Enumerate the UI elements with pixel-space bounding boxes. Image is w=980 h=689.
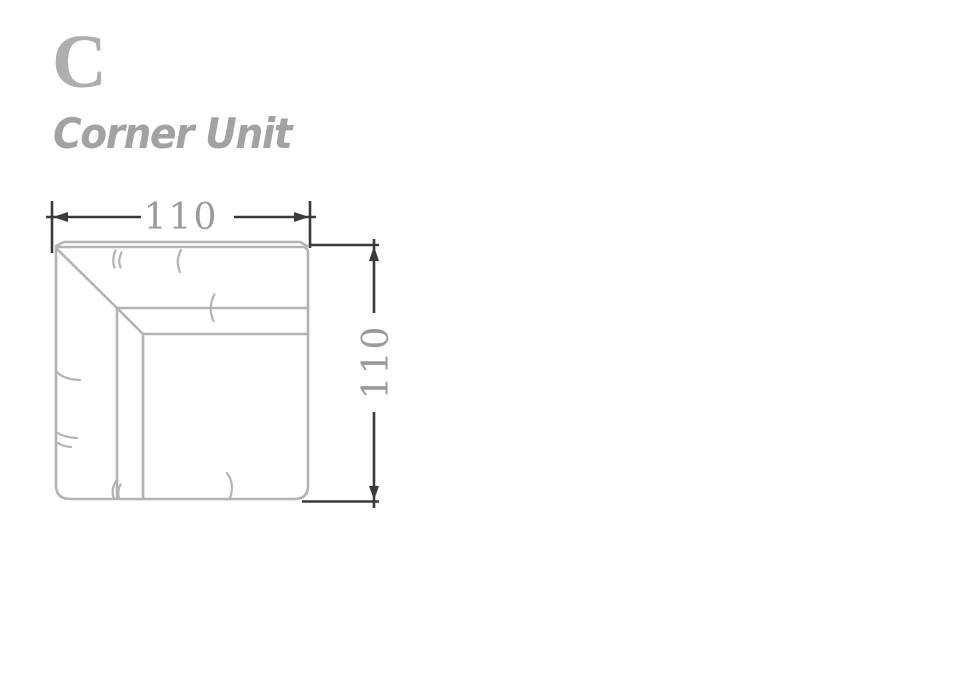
dimension-arrowheads (53, 212, 379, 500)
height-dimension-label: 110 (356, 325, 397, 400)
unit-outline (56, 242, 308, 499)
wrinkle-mark (113, 251, 115, 268)
width-dimension-label: 110 (144, 197, 219, 238)
arrow-left-icon (53, 212, 68, 222)
corner-unit-top-view-diagram: 110 110 (0, 0, 980, 689)
wrinkle-mark (58, 443, 71, 447)
wrinkle-mark (118, 485, 120, 499)
arrow-down-icon (369, 486, 379, 500)
corner-diagonal (57, 249, 117, 308)
wrinkle-mark (56, 432, 77, 438)
cushion-corner-diagonal (117, 308, 143, 334)
product-spec-sheet: C Corner Unit (0, 0, 980, 689)
arrow-up-icon (369, 246, 379, 261)
arrow-right-icon (294, 212, 309, 222)
wrinkle-mark (119, 253, 121, 268)
backrest-top-edge (56, 242, 307, 246)
wrinkle-mark (113, 481, 116, 498)
wrinkle-mark (56, 371, 80, 380)
wrinkle-mark (178, 250, 181, 272)
wrinkle-mark (227, 473, 232, 498)
